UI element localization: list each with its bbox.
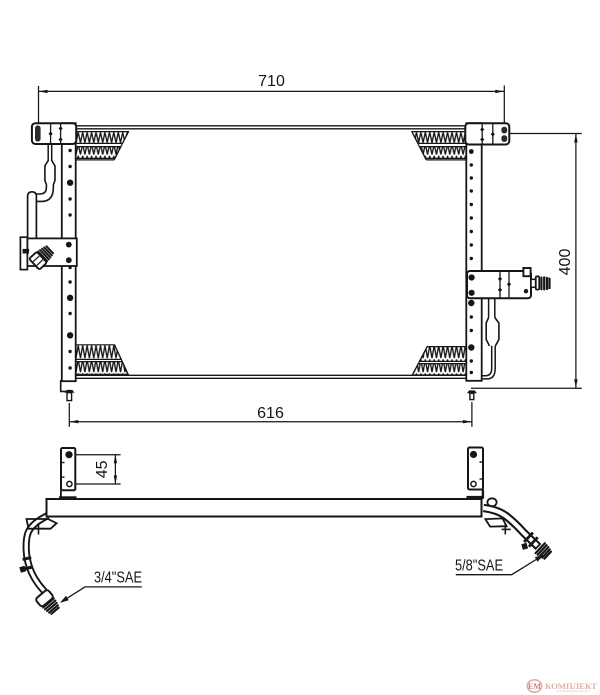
svg-text:710: 710 (258, 73, 285, 90)
svg-text:ЕМ: ЕМ (528, 682, 541, 691)
svg-text:5/8"SAE: 5/8"SAE (455, 558, 503, 575)
svg-text:3/4"SAE: 3/4"SAE (94, 570, 142, 587)
svg-text:616: 616 (257, 405, 284, 422)
svg-text:www em-komplekt auto parts: www em-komplekt auto parts (556, 689, 591, 693)
svg-text:45: 45 (94, 460, 111, 478)
svg-text:400: 400 (557, 249, 574, 276)
